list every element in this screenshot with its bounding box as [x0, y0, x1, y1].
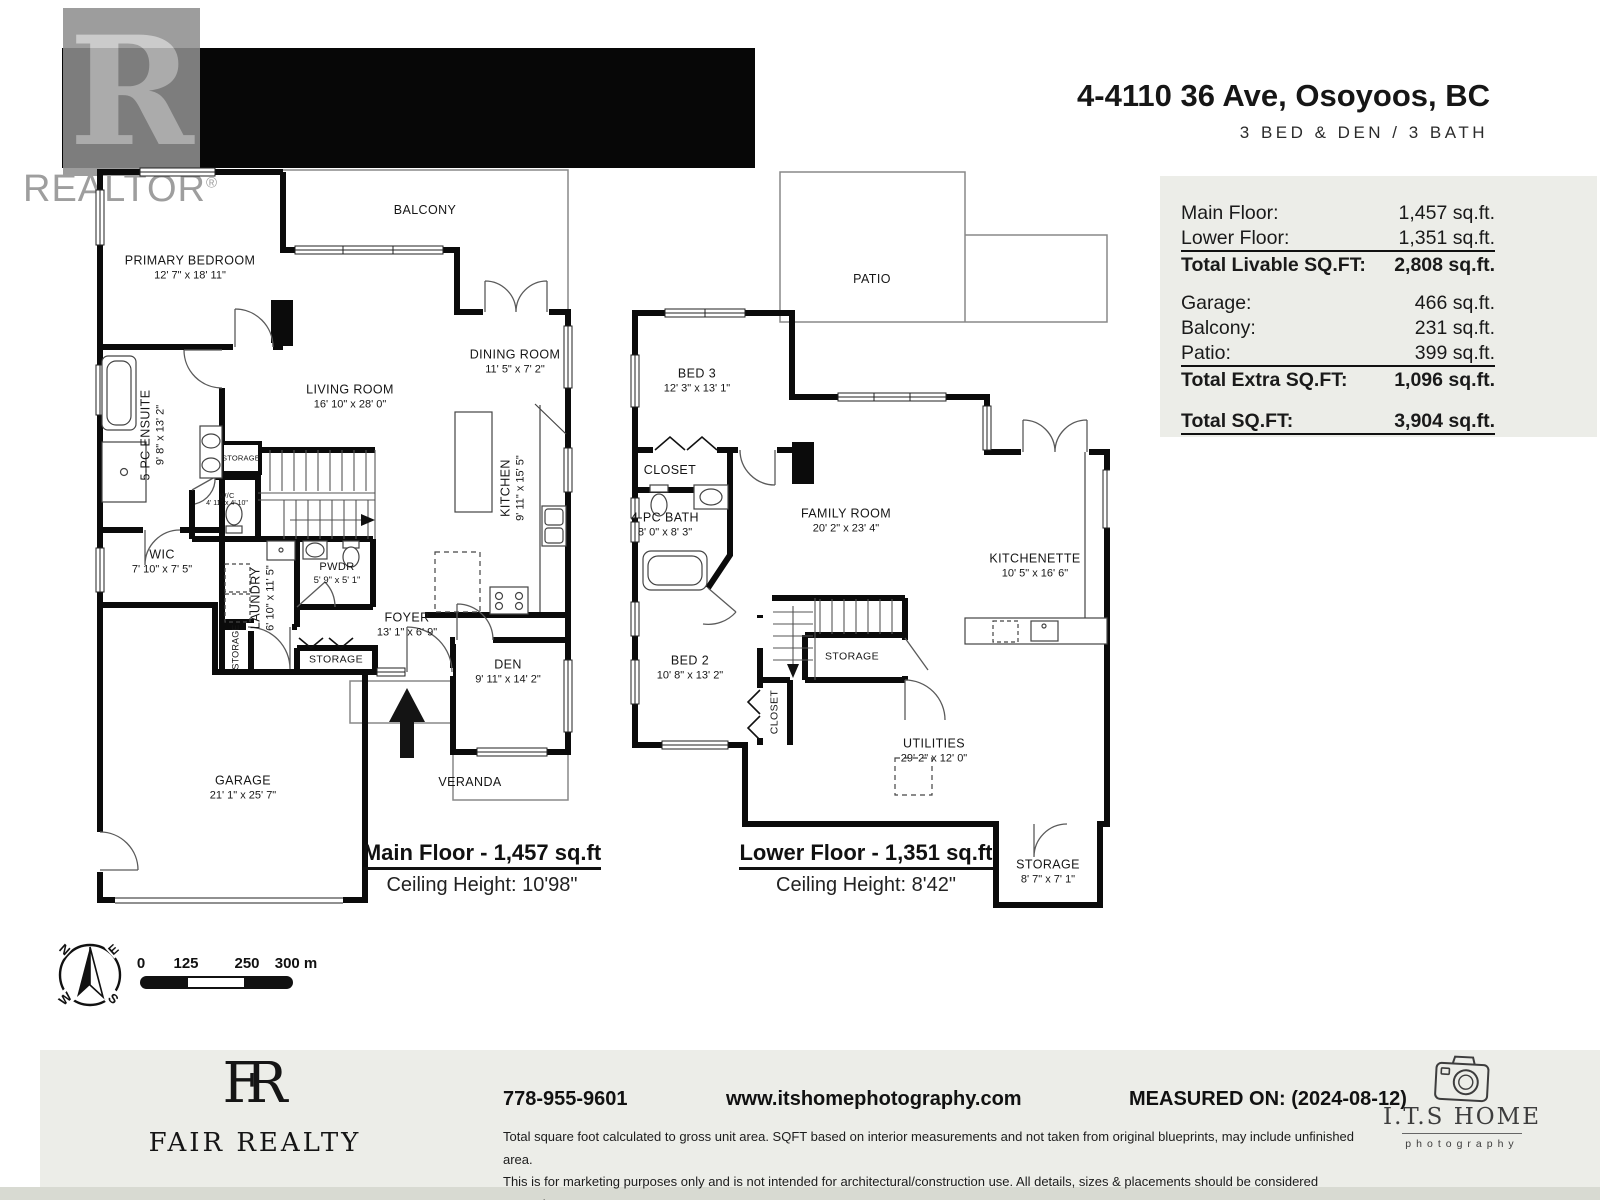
room-label-storage-mid: STORAGE [825, 650, 879, 663]
lower-floor-caption: Lower Floor - 1,351 sq.ft [739, 840, 992, 870]
room-label-storage-b: STORAGE [230, 624, 241, 669]
room-label-closet3: CLOSET [644, 463, 696, 479]
room-label-wic: WIC7' 10" x 7' 5" [132, 547, 192, 576]
main-floor-plan: BALCONY PRIMARY BEDROOM12' 7" x 18' 11" … [85, 160, 600, 910]
footer-measured-on: MEASURED ON: (2024-08-12) [1129, 1088, 1407, 1111]
room-label-living-room: LIVING ROOM16' 10" x 28' 0" [306, 382, 394, 411]
lower-floor-caption-block: Lower Floor - 1,351 sq.ft Ceiling Height… [676, 840, 1056, 897]
room-label-balcony: BALCONY [394, 203, 457, 219]
area-summary-table: Main Floor:1,457 sq.ft. Lower Floor:1,35… [1160, 176, 1597, 437]
footer-phone: 778-955-9601 [503, 1088, 628, 1111]
room-label-storage-c: STORAGE [309, 653, 363, 666]
room-label-kitchenette: KITCHENETTE10' 5" x 16' 6" [989, 551, 1080, 580]
room-label-wc: W/C4' 11" x 4' 10" [206, 491, 248, 509]
row-main-floor: Main Floor:1,457 sq.ft. [1181, 202, 1495, 225]
room-label-bed3: BED 312' 3" x 13' 1" [664, 366, 730, 395]
room-label-storage-a: STORAGE [222, 453, 260, 462]
row-total: Total SQ.FT:3,904 sq.ft. [1181, 410, 1495, 435]
its-home-logo: I.T.S HOME photography [1383, 1052, 1541, 1150]
room-label-veranda: VERANDA [438, 775, 501, 791]
row-lower-floor: Lower Floor:1,351 sq.ft. [1181, 227, 1495, 252]
row-balcony: Balcony:231 sq.ft. [1181, 317, 1495, 340]
room-label-kitchen: KITCHEN9' 11" x 15' 5" [498, 455, 527, 521]
room-label-utilities: UTILITIES29' 2" x 12' 0" [901, 736, 967, 765]
lower-floor-plan: PATIO BED 312' 3" x 13' 1" CLOSET 4-PC B… [610, 160, 1110, 910]
row-total-livable: Total Livable SQ.FT:2,808 sq.ft. [1181, 254, 1495, 277]
page-subtitle: 3 BED & DEN / 3 BATH [1240, 123, 1488, 143]
room-label-primary-bedroom: PRIMARY BEDROOM12' 7" x 18' 11" [125, 253, 256, 282]
footer-website: www.itshomephotography.com [726, 1088, 1022, 1111]
main-floor-ceiling: Ceiling Height: 10'98" [292, 874, 672, 897]
room-label-ensuite: 5-PC ENSUITE9' 8" x 13' 2" [138, 390, 167, 481]
floorplan-page: R REALTOR® 4-4110 36 Ave, Osoyoos, BC 3 … [0, 0, 1600, 1200]
room-label-laundry: LAUNDRY6' 10" x 11' 5" [248, 565, 277, 631]
page-title: 4-4110 36 Ave, Osoyoos, BC [1077, 78, 1490, 114]
row-total-extra: Total Extra SQ.FT:1,096 sq.ft. [1181, 369, 1495, 392]
row-patio: Patio:399 sq.ft. [1181, 342, 1495, 367]
room-label-foyer: FOYER13' 1" x 6' 9" [377, 610, 437, 639]
room-label-patio: PATIO [853, 272, 891, 288]
camera-icon [1429, 1050, 1496, 1105]
room-label-garage: GARAGE21' 1" x 25' 7" [210, 773, 276, 802]
room-label-pwdr: PWDR5' 9" x 5' 1" [314, 561, 361, 587]
room-label-family-room: FAMILY ROOM20' 2" x 23' 4" [801, 506, 891, 535]
scale-bar [140, 976, 293, 989]
room-label-bath: 4-PC BATH8' 0" x 8' 3" [631, 510, 699, 539]
footer-disclaimer: Total square foot calculated to gross un… [503, 1126, 1363, 1200]
room-label-den: DEN9' 11" x 14' 2" [475, 657, 541, 686]
room-label-dining-room: DINING ROOM11' 5" x 7' 2" [470, 347, 561, 376]
main-floor-caption-block: Main Floor - 1,457 sq.ft Ceiling Height:… [292, 840, 672, 897]
lower-floor-ceiling: Ceiling Height: 8'42" [676, 874, 1056, 897]
fair-realty-logo: FR [222, 1056, 287, 1112]
fair-realty-name: FAIR REALTY [149, 1128, 362, 1158]
room-label-bed2: BED 210' 8" x 13' 2" [657, 653, 723, 682]
realtor-logo: R [63, 8, 200, 176]
room-label-closet2: CLOSET [768, 690, 781, 734]
main-floor-caption: Main Floor - 1,457 sq.ft [363, 840, 601, 870]
realtor-logo-letter: R [69, 17, 194, 167]
row-garage: Garage:466 sq.ft. [1181, 292, 1495, 315]
compass-rose: N E W S [48, 933, 132, 1017]
